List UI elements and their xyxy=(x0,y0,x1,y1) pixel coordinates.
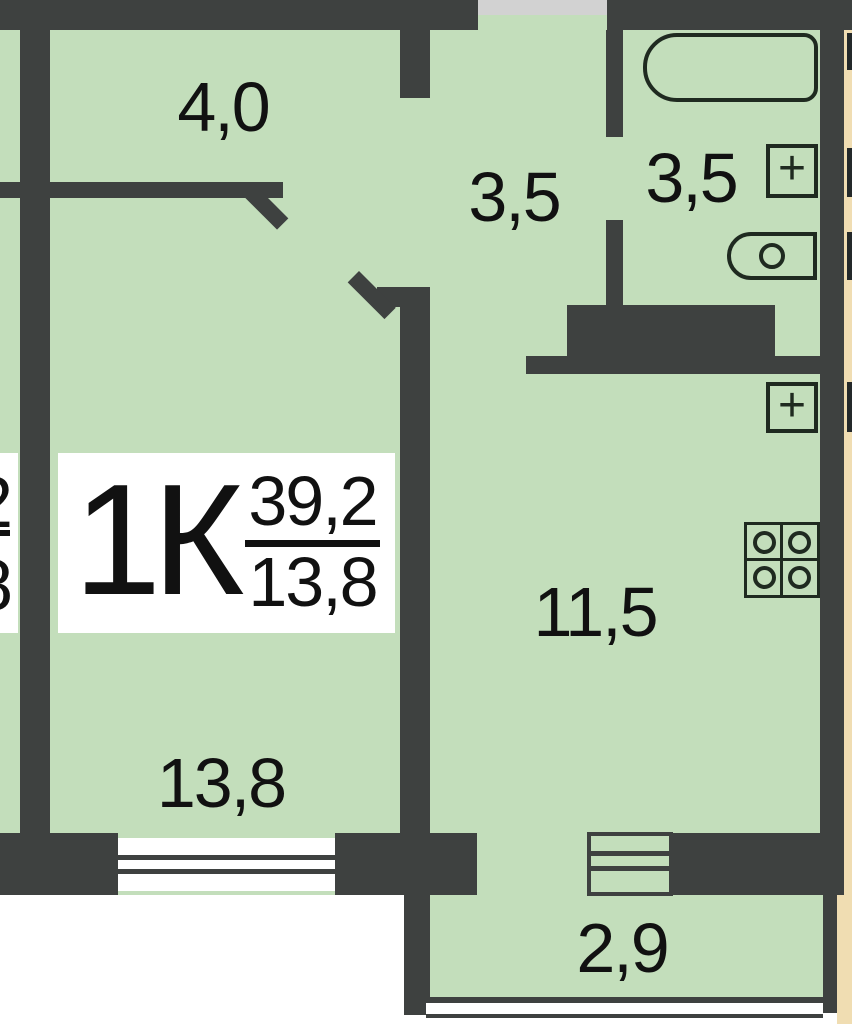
total-area-value: 39,2 xyxy=(245,466,379,546)
living-room-area-label: 13,8 xyxy=(157,748,285,818)
entrance-door-opening xyxy=(478,0,607,15)
burner-circle xyxy=(788,566,811,589)
balcony-glazing xyxy=(426,997,823,1018)
kitchen-top-wall xyxy=(526,356,820,374)
neighbor-fixture-sliver xyxy=(847,33,852,70)
plus-glyph: + xyxy=(778,145,806,193)
bathtub-icon xyxy=(643,33,818,102)
kitchen-bottom-wall-left xyxy=(420,833,477,895)
window-mullion-line xyxy=(118,855,335,860)
stove-divider-h xyxy=(747,558,817,561)
neighbor-fixture-sliver xyxy=(847,148,852,197)
top-wall xyxy=(0,0,852,30)
kitchen-area-label: 11,5 xyxy=(533,577,656,647)
neighbor-fixture-sliver xyxy=(847,232,852,280)
hallway-room-wall xyxy=(0,182,283,198)
window-mullion-line xyxy=(591,866,669,871)
burner-circle xyxy=(753,531,776,554)
window-mullion-line xyxy=(118,869,335,874)
electric-panel-icon: + xyxy=(766,144,818,198)
neighbor-living-area-partial: 8 xyxy=(0,550,13,622)
entrance-door-inner xyxy=(478,15,607,30)
exterior-bottom-strip xyxy=(404,1017,837,1024)
area-fraction: 39,2 13,8 xyxy=(245,466,379,618)
apartment-label: 1К 39,2 13,8 xyxy=(58,453,395,633)
right-wall xyxy=(820,0,844,895)
kitchen-bottom-wall-right xyxy=(673,833,820,895)
sink-icon xyxy=(727,232,817,280)
bottom-wall-mid xyxy=(335,833,420,895)
kitchen-balcony-window xyxy=(587,832,673,896)
bathroom-left-wall-upper xyxy=(606,30,623,137)
electric-panel-icon: + xyxy=(766,382,818,433)
burner-circle xyxy=(753,566,776,589)
unit-type-label: 1К xyxy=(73,461,235,619)
balcony-area-label: 2,9 xyxy=(576,913,667,983)
living-room-window xyxy=(118,838,335,891)
sink-drain-circle xyxy=(759,243,785,269)
living-area-value: 13,8 xyxy=(245,547,379,618)
window-mullion-line xyxy=(591,851,669,856)
bathroom-left-wall-lower xyxy=(606,220,623,310)
stove-icon xyxy=(744,522,820,598)
burner-circle xyxy=(788,531,811,554)
bathroom-area-label: 3,5 xyxy=(645,143,736,213)
neighbor-fraction-line-partial xyxy=(0,530,10,536)
floor-plan: + + 4,0 3,5 3,5 11,5 13,8 2,9 1К 39,2 13… xyxy=(0,0,852,1024)
neighbor-apartment-label-partial: 2 8 xyxy=(0,453,18,633)
neighbor-area-bottom-right xyxy=(837,895,852,1024)
plus-glyph: + xyxy=(778,382,806,430)
neighbor-total-area-partial: 2 xyxy=(0,467,13,539)
balcony-right-wall xyxy=(823,895,837,1013)
corridor-area-label: 3,5 xyxy=(468,162,559,232)
exterior-bottom-left xyxy=(0,895,404,1024)
room-right-wall xyxy=(400,303,430,895)
hallway-corridor-stub-wall xyxy=(400,30,430,98)
hallway-area-label: 4,0 xyxy=(177,72,268,142)
bottom-wall-left xyxy=(0,833,118,895)
neighbor-fixture-sliver xyxy=(847,382,852,432)
ventilation-shaft-block xyxy=(567,305,775,360)
left-wall xyxy=(20,30,50,895)
